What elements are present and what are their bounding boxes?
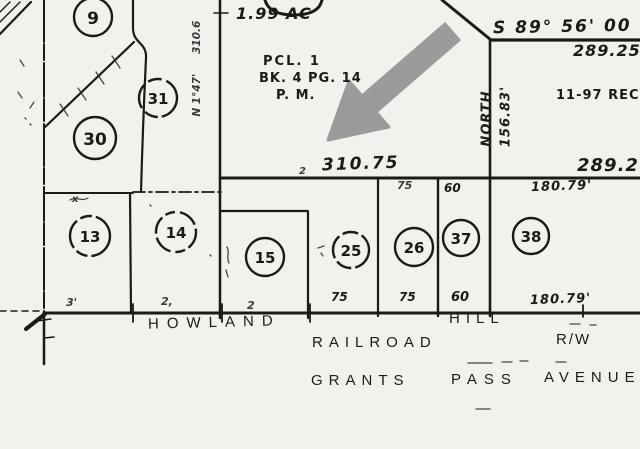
- distance-top-right: 289.25: [573, 43, 640, 59]
- bearing-top-label: S 89° 56' 00: [493, 18, 632, 37]
- street-avenue: AVENUE: [544, 370, 640, 385]
- dim-180-lower: 180.79': [530, 292, 592, 307]
- parcel-note-line3: P. M.: [276, 89, 315, 102]
- street-railroad: RAILROAD: [312, 335, 437, 350]
- street-hill: HILL: [449, 311, 505, 326]
- lot-width-75-b: 75: [399, 291, 416, 303]
- parcel-label-26: 26: [397, 239, 431, 257]
- survey-scribble: 2,: [161, 296, 173, 307]
- survey-scribble: 2: [299, 167, 306, 177]
- west-line-distance: 310.6: [192, 13, 203, 61]
- survey-scribble: x: [72, 195, 78, 205]
- parcel-label-37: 37: [444, 230, 478, 248]
- lot-width-60-upper: 60: [444, 182, 461, 194]
- lot-width-75-a: 75: [331, 291, 348, 303]
- north-line-distance: 156.83': [500, 77, 513, 157]
- north-line-bearing: NORTH: [481, 79, 494, 159]
- parcel-label-15: 15: [248, 249, 282, 267]
- parcel-note-line2: BK. 4 PG. 14: [259, 72, 362, 85]
- dim-180-upper: 180.79': [531, 179, 593, 194]
- survey-scribble: 3': [66, 297, 77, 308]
- street-grants: GRANTS: [311, 373, 410, 388]
- parcel-label-30: 30: [78, 130, 112, 150]
- parcel-label-38: 38: [514, 228, 548, 246]
- lot-width-75-upper: 75: [397, 180, 412, 191]
- distance-mid-right: 289.2: [577, 157, 639, 175]
- railroad-right-of-way-label: R/W: [556, 332, 591, 347]
- parcel-label-14: 14: [159, 224, 193, 242]
- parcel-label-13: 13: [73, 228, 107, 246]
- distance-mid: 310.75: [322, 155, 400, 175]
- parcel-label-31: 31: [141, 90, 175, 108]
- street-pass: PASS: [451, 372, 518, 387]
- parcel-label-9: 9: [76, 9, 110, 29]
- parcel-label-25: 25: [334, 242, 368, 260]
- lot-width-60-lower: 60: [451, 291, 469, 304]
- west-line-bearing: N 1°47': [192, 60, 203, 130]
- plat-map: 9 31 30 13 14 15 25 26 37 38 1.99 AC PCL…: [0, 0, 640, 449]
- street-howland: HOWLAND: [148, 313, 281, 331]
- survey-scribble: 2: [247, 300, 255, 311]
- acreage-label: 1.99 AC: [236, 6, 312, 22]
- parcel-note-line1: PCL. 1: [263, 55, 321, 68]
- record-note: 11-97 REC: [556, 89, 640, 102]
